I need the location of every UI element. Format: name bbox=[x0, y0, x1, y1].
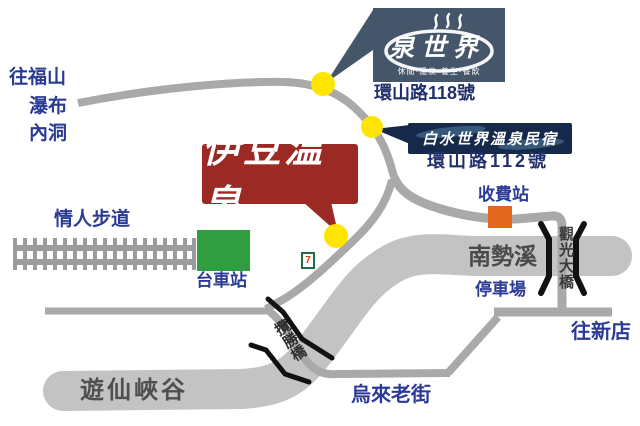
spring-world-tagline: 休閒·溫泉·養生·餐飲 bbox=[398, 66, 481, 76]
spring-sign-pointer bbox=[326, 10, 373, 83]
spring-world-sign: 泉世界 休閒·溫泉·養生·餐飲 bbox=[373, 8, 505, 82]
nanshi-river-label: 南勢溪 bbox=[468, 244, 537, 268]
to-xindian-label: 往新店 bbox=[571, 322, 631, 343]
cart-station-box bbox=[197, 230, 250, 271]
destination-fushan: 往福山 bbox=[9, 68, 66, 88]
seven-eleven-icon: 7 bbox=[301, 252, 315, 269]
spring-world-address: 環山路118號 bbox=[374, 84, 475, 103]
izu-sign-name: 伊豆温泉 bbox=[202, 118, 358, 228]
railway-track bbox=[13, 238, 196, 270]
seven-eleven-glyph: 7 bbox=[305, 256, 311, 266]
cart-station-label: 台車站 bbox=[196, 272, 247, 290]
destination-waterfall: 瀑布 bbox=[29, 97, 67, 117]
destination-neidong: 內洞 bbox=[29, 124, 67, 144]
youxian-gorge-label: 遊仙峽谷 bbox=[80, 378, 188, 403]
location-dot-spring-world bbox=[311, 72, 335, 96]
izu-hot-spring-sign: 伊豆温泉 bbox=[202, 144, 358, 204]
toll-station-box bbox=[488, 206, 512, 228]
toll-station-label: 收費站 bbox=[478, 186, 529, 204]
guanguang-bridge-label: 觀光大橋 bbox=[555, 226, 576, 300]
wulai-old-street-label: 烏來老街 bbox=[351, 385, 431, 406]
spring-world-logo: 泉世界 休閒·溫泉·養生·餐飲 bbox=[373, 8, 505, 82]
location-dot-baishui bbox=[361, 116, 383, 138]
parking-label: 停車場 bbox=[475, 281, 526, 299]
road-old-street-link bbox=[448, 317, 498, 373]
spring-world-name: 泉世界 bbox=[389, 33, 485, 62]
baishui-address: 環山路112號 bbox=[427, 152, 549, 171]
baishui-sign-name: 白水世界溫泉民宿 bbox=[408, 123, 572, 154]
wulai-hot-spring-map: 泉世界 休閒·溫泉·養生·餐飲 環山路118號 白水世界溫泉民宿 環山路112號… bbox=[0, 0, 640, 426]
steam-icon bbox=[435, 14, 461, 28]
baishui-sign: 白水世界溫泉民宿 bbox=[408, 123, 572, 154]
lovers-trail-label: 情人步道 bbox=[54, 210, 130, 230]
